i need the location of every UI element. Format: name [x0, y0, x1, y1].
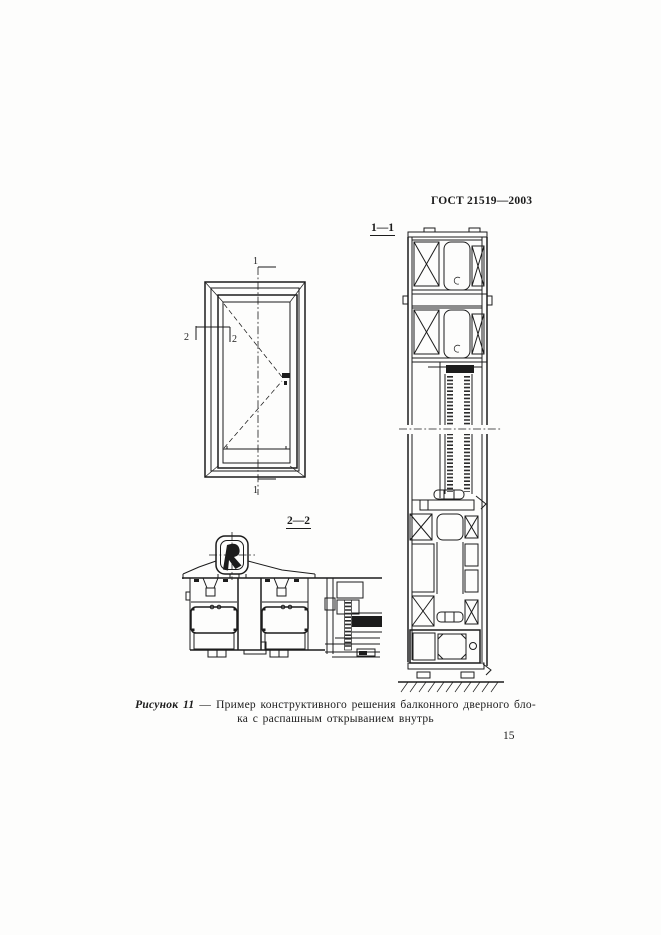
glazing-and-wall	[325, 582, 382, 656]
door-handle	[282, 373, 290, 378]
figure-number: Рисунок 11	[135, 699, 194, 711]
ground-hatch	[398, 682, 504, 692]
caption-line-2: ка с распашным открыванием внутрь	[73, 713, 598, 727]
marker-1-bottom: 1	[253, 485, 258, 496]
horizontal-section-drawing	[182, 530, 384, 670]
doc-code: ГОСТ 21519—2003	[431, 195, 521, 207]
caption-dash: —	[199, 699, 211, 711]
sill-block	[408, 596, 491, 678]
section-axis-1: 1 1	[253, 256, 276, 496]
door-elevation-drawing: 1 1 2 2	[183, 250, 323, 502]
marker-1-top: 1	[253, 256, 258, 267]
leaf-top-block	[412, 308, 487, 362]
figure-caption: Рисунок 11—Пример конструктивного решени…	[73, 699, 598, 726]
head-profile-block	[403, 240, 492, 306]
section-1-1-label: 1—1	[370, 222, 395, 236]
marker-2-left: 2	[184, 332, 189, 343]
marker-2-right: 2	[232, 334, 237, 345]
leaf-profile-right	[262, 578, 308, 650]
door-leaf	[218, 295, 297, 468]
document-page: ГОСТ 21519—2003 1—1 2—2 1 1	[0, 0, 661, 935]
leaf-bottom-block	[410, 514, 478, 594]
caption-text-line-1: Пример конструктивного решения балконног…	[216, 699, 536, 711]
page-number: 15	[503, 730, 515, 742]
section-2-2-label: 2—2	[286, 515, 311, 529]
glazing-unit	[398, 362, 504, 510]
glazing-bead-edge	[325, 578, 335, 654]
leaf-top-profile	[183, 561, 315, 579]
frame-profile-left	[186, 578, 237, 650]
section-bottom-edge	[190, 650, 380, 657]
handle-escutcheon	[209, 532, 255, 580]
vertical-section-drawing	[398, 226, 506, 704]
caption-line-1: Рисунок 11—Пример конструктивного решени…	[73, 699, 598, 713]
